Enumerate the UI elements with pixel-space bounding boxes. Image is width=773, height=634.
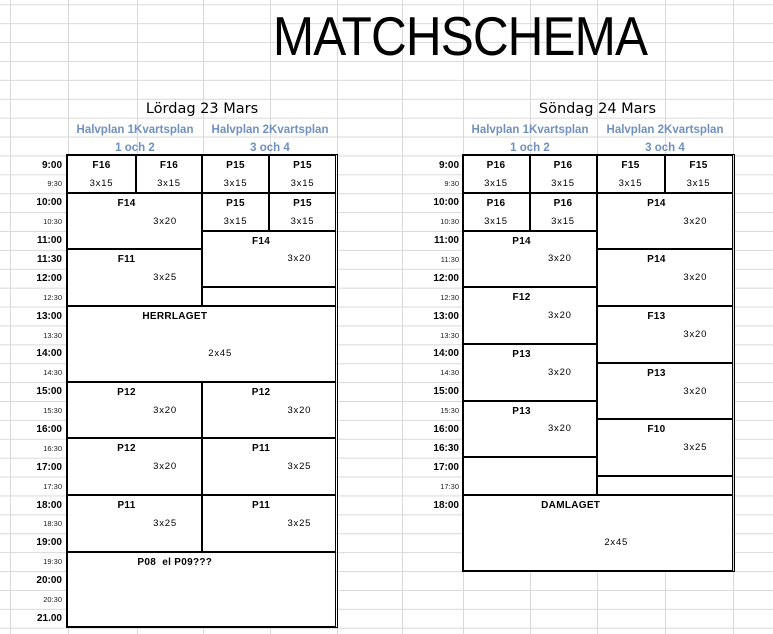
match-format-label: 3x15	[531, 213, 596, 231]
match-team-label: P15	[270, 194, 335, 213]
time-label: 15:00	[396, 382, 459, 401]
time-label: 16:00	[0, 420, 62, 439]
match-box-p11[interactable]: P113x25	[202, 438, 336, 495]
match-team-label: P11	[203, 439, 319, 458]
time-label: 12:30	[0, 288, 62, 307]
time-label: 18:00	[0, 496, 62, 515]
match-team-label: F13	[598, 307, 716, 326]
match-team-label: P08 el P09???	[68, 553, 282, 572]
match-format-label: 3x15	[270, 213, 335, 231]
court-header-sat-halvplan-2: Halvplan 2Kvartsplan 3 och 4	[203, 122, 337, 158]
match-box-herrlaget[interactable]: HERRLAGET2x45	[67, 306, 336, 382]
empty-cell[interactable]	[202, 287, 336, 306]
match-team-label: F16	[68, 156, 135, 175]
time-label: 9:30	[0, 174, 62, 193]
match-box-p16[interactable]: P163x15	[463, 155, 530, 193]
time-label: 18:00	[396, 496, 459, 515]
time-label: 12:00	[0, 269, 62, 288]
match-format-label: 3x20	[129, 458, 201, 477]
match-format-label: 3x20	[524, 307, 595, 326]
match-box-f16[interactable]: F163x15	[67, 155, 136, 193]
time-column-sunday: 9:009:3010:0010:3011:0011:3012:0012:3013…	[396, 156, 459, 515]
match-team-label: P12	[68, 439, 185, 458]
time-label: 20:00	[0, 571, 62, 590]
time-label: 10:00	[396, 193, 459, 212]
time-label: 13:30	[0, 326, 62, 345]
match-format-label: 3x25	[129, 515, 201, 534]
match-box-p12[interactable]: P123x20	[202, 382, 336, 439]
time-label: 21.00	[0, 609, 62, 628]
match-box-p11[interactable]: P113x25	[202, 495, 336, 552]
match-box-f15[interactable]: F153x15	[665, 155, 733, 193]
time-label: 9:30	[396, 174, 459, 193]
match-box-p13[interactable]: P133x20	[463, 401, 597, 458]
schedule-table-sunday: P163x15P163x15F153x15F153x15P163x15P163x…	[462, 154, 735, 572]
match-box-p16[interactable]: P163x15	[530, 193, 597, 231]
match-format-label: 3x15	[68, 175, 135, 193]
match-box-p12[interactable]: P123x20	[67, 382, 202, 439]
match-team-label: P16	[464, 156, 529, 175]
time-label: 14:00	[0, 344, 62, 363]
match-format-label: 3x15	[137, 175, 201, 193]
match-box-damlaget[interactable]: DAMLAGET2x45	[463, 495, 733, 571]
match-format-label: 3x20	[659, 383, 731, 402]
day-header-saturday: Lördag 23 Mars	[66, 101, 338, 121]
match-box-p12[interactable]: P123x20	[67, 438, 202, 495]
match-format-label: 3x20	[659, 269, 731, 288]
court-header-sun-halvplan-1: Halvplan 1Kvartsplan 1 och 2	[463, 122, 597, 158]
match-team-label: P11	[68, 496, 185, 515]
match-box-f14[interactable]: F143x20	[202, 231, 336, 288]
match-format-label: 3x15	[464, 213, 529, 231]
match-box-f16[interactable]: F163x15	[136, 155, 202, 193]
match-team-label: P15	[270, 156, 335, 175]
time-label: 18:30	[0, 514, 62, 533]
time-label: 11:00	[396, 231, 459, 250]
empty-cell[interactable]	[597, 476, 733, 495]
time-label: 13:00	[396, 307, 459, 326]
match-box-p13[interactable]: P133x20	[597, 363, 733, 420]
match-team-label: P13	[598, 364, 716, 383]
schedule-table-saturday: F163x15F163x15P153x15P153x15F143x20P153x…	[66, 154, 338, 628]
match-team-label: P15	[203, 156, 268, 175]
match-box-f10[interactable]: F103x25	[597, 419, 733, 476]
match-team-label: F15	[598, 156, 664, 175]
spreadsheet-grid: MATCHSCHEMA Lördag 23 Mars Söndag 24 Mar…	[0, 0, 773, 634]
match-box-p15[interactable]: P153x15	[202, 193, 269, 231]
match-format-label: 3x20	[129, 402, 201, 421]
match-format-label: 3x15	[464, 175, 529, 193]
match-format-label: 3x15	[203, 213, 268, 231]
time-label: 11:00	[0, 231, 62, 250]
court-header-title: Halvplan 1Kvartsplan	[67, 122, 203, 140]
time-label: 16:30	[0, 439, 62, 458]
match-format-label: 3x15	[203, 175, 268, 193]
court-header-title: Halvplan 1Kvartsplan	[463, 122, 597, 140]
match-format-label: 2x45	[522, 534, 710, 553]
match-team-label: P12	[203, 383, 319, 402]
match-format-label: 2x45	[127, 345, 314, 364]
match-box-f15[interactable]: F153x15	[597, 155, 665, 193]
match-team-label: F16	[137, 156, 201, 175]
match-format-label: 3x20	[264, 250, 335, 269]
court-header-sat-halvplan-1: Halvplan 1Kvartsplan 1 och 2	[67, 122, 203, 158]
time-column-saturday: 9:009:3010:0010:3011:0011:3012:0012:3013…	[0, 156, 62, 628]
match-box-p15[interactable]: P153x15	[202, 155, 269, 193]
match-team-label: F10	[598, 420, 716, 439]
match-box-p11[interactable]: P113x25	[67, 495, 202, 552]
match-team-label: P13	[464, 402, 580, 421]
time-label: 10:30	[396, 212, 459, 231]
time-label: 13:30	[396, 326, 459, 345]
match-team-label: P16	[531, 156, 596, 175]
match-team-label: P14	[598, 250, 716, 269]
match-team-label: P16	[531, 194, 596, 213]
match-format-label: 3x25	[264, 458, 335, 477]
match-team-label: P15	[203, 194, 268, 213]
match-box-f13[interactable]: F133x20	[597, 306, 733, 363]
match-format-label: 3x25	[659, 439, 731, 458]
court-header-sun-halvplan-2: Halvplan 2Kvartsplan 3 och 4	[597, 122, 733, 158]
match-format-label: 3x25	[129, 269, 201, 288]
match-box-p16[interactable]: P163x15	[463, 193, 530, 231]
match-team-label: P14	[464, 232, 580, 251]
match-format-label: 3x20	[524, 420, 595, 439]
time-label: 14:30	[0, 363, 62, 382]
court-header-title: Halvplan 2Kvartsplan	[597, 122, 733, 140]
time-label: 15:30	[0, 401, 62, 420]
match-box-p14[interactable]: P143x20	[597, 249, 733, 306]
match-team-label: P16	[464, 194, 529, 213]
time-label: 17:00	[396, 458, 459, 477]
match-box-p16[interactable]: P163x15	[530, 155, 597, 193]
match-format-label: 3x20	[524, 364, 595, 383]
time-label: 13:00	[0, 307, 62, 326]
match-box-f11[interactable]: F113x25	[67, 249, 202, 306]
match-team-label: P11	[203, 496, 319, 515]
match-box-p13[interactable]: P133x20	[463, 344, 597, 401]
time-label: 15:00	[0, 382, 62, 401]
match-box-f12[interactable]: F123x20	[463, 287, 597, 344]
time-label: 16:00	[396, 420, 459, 439]
match-box-p14[interactable]: P143x20	[597, 193, 733, 250]
match-format-label: 3x20	[659, 213, 731, 232]
time-label: 14:00	[396, 344, 459, 363]
match-format-label: 3x15	[531, 175, 596, 193]
page-title: MATCHSCHEMA	[181, 8, 739, 64]
match-format-label: 3x15	[270, 175, 335, 193]
match-box-f14[interactable]: F143x20	[67, 193, 202, 250]
time-label: 14:30	[396, 363, 459, 382]
match-box-p08-el-p09[interactable]: P08 el P09???	[67, 552, 336, 628]
time-label: 17:30	[0, 477, 62, 496]
match-format-label: 3x20	[524, 250, 595, 269]
match-format-label: 3x20	[129, 213, 201, 232]
match-team-label: F15	[666, 156, 732, 175]
time-label: 11:30	[0, 250, 62, 269]
time-label: 12:00	[396, 269, 459, 288]
time-label: 15:30	[396, 401, 459, 420]
time-label: 17:00	[0, 458, 62, 477]
time-label: 20:30	[0, 590, 62, 609]
match-team-label: P12	[68, 383, 185, 402]
match-box-p14[interactable]: P143x20	[463, 231, 597, 288]
match-team-label: P14	[598, 194, 716, 213]
match-format-label: 3x15	[666, 175, 732, 193]
match-team-label: F14	[68, 194, 185, 213]
time-label: 17:30	[396, 477, 459, 496]
time-label: 12:30	[396, 288, 459, 307]
time-label: 10:30	[0, 212, 62, 231]
match-format-label: 3x25	[264, 515, 335, 534]
match-box-p15[interactable]: P153x15	[269, 193, 336, 231]
match-team-label: HERRLAGET	[68, 307, 282, 326]
empty-cell[interactable]	[463, 457, 597, 495]
match-format-label: 3x15	[598, 175, 664, 193]
time-label: 16:30	[396, 439, 459, 458]
match-team-label: F14	[203, 232, 319, 251]
match-format-label: 3x20	[264, 402, 335, 421]
match-team-label: F12	[464, 288, 580, 307]
time-label: 10:00	[0, 193, 62, 212]
match-team-label: P13	[464, 345, 580, 364]
time-label: 9:00	[396, 156, 459, 175]
match-format-label: 3x20	[659, 326, 731, 345]
match-box-p15[interactable]: P153x15	[269, 155, 336, 193]
day-header-sunday: Söndag 24 Mars	[461, 101, 734, 121]
time-label: 19:30	[0, 552, 62, 571]
time-label: 9:00	[0, 156, 62, 175]
time-label: 11:30	[396, 250, 459, 269]
time-label: 19:00	[0, 533, 62, 552]
match-team-label: DAMLAGET	[464, 496, 678, 515]
court-header-title: Halvplan 2Kvartsplan	[203, 122, 337, 140]
match-team-label: F11	[68, 250, 185, 269]
